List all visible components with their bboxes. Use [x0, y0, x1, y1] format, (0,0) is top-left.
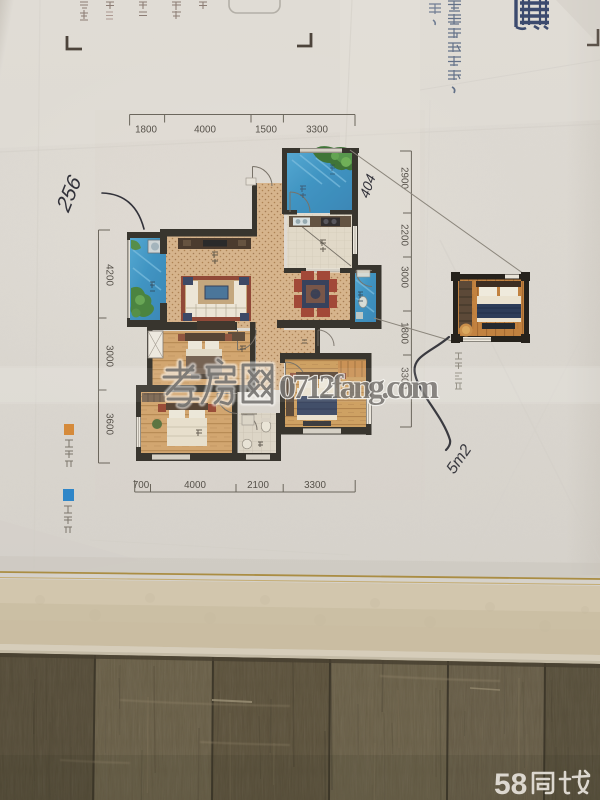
- svg-text:4200: 4200: [104, 264, 115, 286]
- svg-text:3300: 3300: [304, 480, 326, 491]
- svg-text:58: 58: [494, 768, 527, 800]
- svg-text:3000: 3000: [399, 266, 410, 288]
- svg-text:3000: 3000: [104, 345, 115, 367]
- svg-text:1800: 1800: [135, 125, 157, 136]
- svg-text:2200: 2200: [399, 224, 410, 246]
- svg-text:2100: 2100: [247, 480, 269, 491]
- svg-text:0712fang.com: 0712fang.com: [279, 369, 439, 406]
- svg-text:3300: 3300: [306, 125, 328, 136]
- svg-text:1500: 1500: [255, 125, 277, 136]
- svg-text:4000: 4000: [194, 125, 216, 136]
- svg-text:3600: 3600: [104, 413, 115, 435]
- svg-text:4000: 4000: [184, 480, 206, 491]
- svg-text:700: 700: [133, 480, 150, 491]
